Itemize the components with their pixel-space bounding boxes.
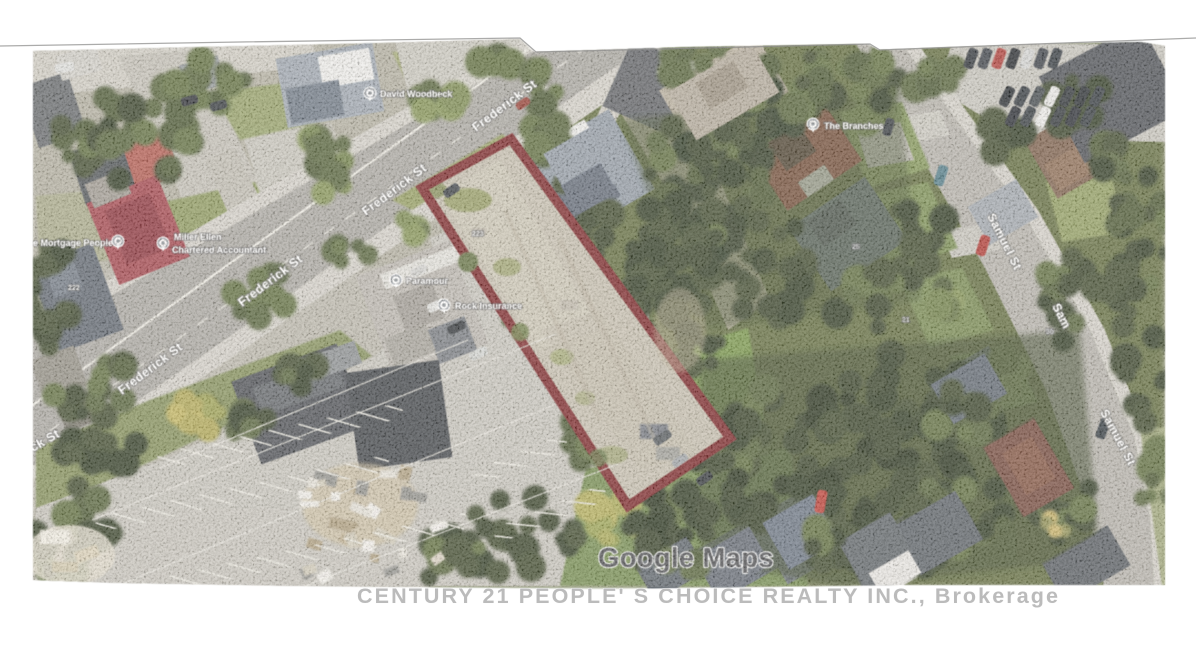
svg-text:CENTURY 21 PEOPLE' S CHOICE RE: CENTURY 21 PEOPLE' S CHOICE REALTY INC.,…	[357, 584, 1060, 608]
